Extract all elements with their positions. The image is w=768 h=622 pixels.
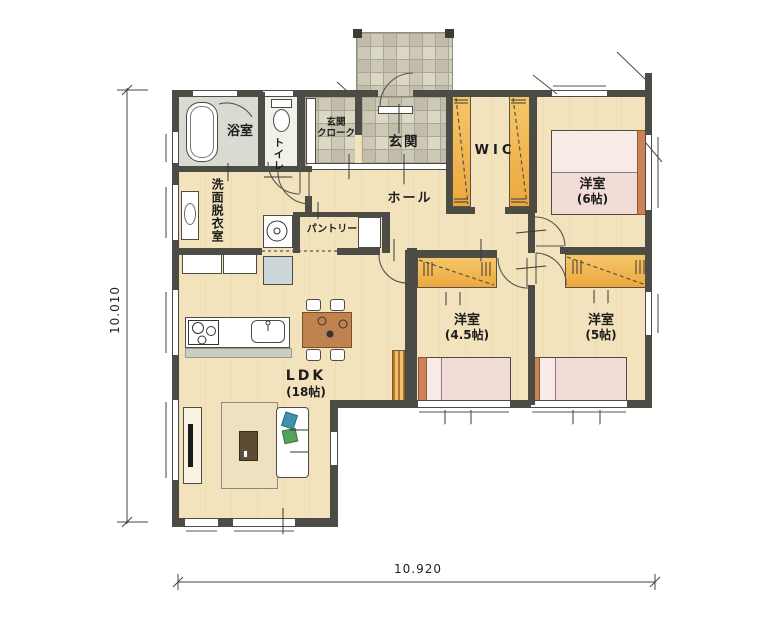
dimension-left: 10.010 bbox=[108, 275, 122, 345]
dining-table bbox=[302, 312, 352, 348]
window bbox=[172, 132, 179, 163]
wall bbox=[505, 207, 535, 214]
window bbox=[233, 518, 295, 527]
wall bbox=[297, 92, 305, 166]
wall bbox=[530, 92, 537, 213]
label-entrance-cloak: 玄関 クローク bbox=[312, 117, 360, 139]
window bbox=[645, 292, 652, 335]
wall bbox=[528, 285, 535, 405]
porch-post bbox=[353, 29, 362, 38]
tv bbox=[188, 424, 193, 467]
wall bbox=[293, 212, 390, 217]
toilet-bowl bbox=[273, 109, 290, 132]
wic-closet-strip bbox=[452, 95, 471, 207]
refrigerator bbox=[263, 256, 293, 285]
label-bath: 浴室 bbox=[218, 124, 262, 139]
stove bbox=[188, 320, 219, 345]
kitchen-back-cabinet bbox=[223, 253, 257, 274]
wall bbox=[330, 465, 338, 527]
window bbox=[418, 400, 510, 408]
label-wic: WIC bbox=[470, 143, 520, 158]
washing-machine bbox=[263, 215, 293, 248]
wall bbox=[172, 166, 312, 172]
label-pantry: パントリー bbox=[304, 224, 360, 236]
wall bbox=[627, 400, 652, 408]
window bbox=[172, 185, 179, 240]
wall bbox=[382, 212, 390, 253]
wall bbox=[446, 92, 452, 213]
window bbox=[552, 90, 607, 97]
wall bbox=[417, 250, 497, 257]
wall bbox=[645, 335, 652, 408]
window bbox=[193, 90, 237, 97]
wall bbox=[560, 247, 652, 254]
dimension-bottom: 10.920 bbox=[383, 562, 453, 576]
kitchen-counter-front bbox=[185, 348, 292, 358]
label-bedroom5: 洋室 (5帖) bbox=[570, 313, 632, 342]
entrance-step bbox=[308, 163, 452, 170]
window bbox=[330, 432, 338, 465]
bed-bedroom45-blanket bbox=[441, 358, 510, 401]
porch-tiles bbox=[356, 32, 453, 97]
dining-chair bbox=[306, 349, 321, 361]
pantry-shelf bbox=[358, 217, 381, 248]
kitchen-back-cabinet bbox=[182, 253, 222, 274]
wall bbox=[218, 518, 233, 527]
wall bbox=[172, 518, 185, 527]
sofa-cushion-green bbox=[282, 428, 299, 445]
label-toilet: トイレ bbox=[272, 134, 284, 174]
label-bedroom45: 洋室 (4.5帖) bbox=[435, 313, 499, 342]
wall bbox=[172, 355, 179, 400]
wall bbox=[528, 213, 535, 253]
dining-chair bbox=[306, 299, 321, 311]
dining-chair bbox=[330, 349, 345, 361]
wall bbox=[293, 212, 300, 253]
bed-bedroom45-headboard bbox=[418, 357, 427, 402]
label-hall: ホール bbox=[384, 191, 436, 206]
slat-screen bbox=[392, 350, 405, 402]
wall bbox=[645, 73, 652, 135]
window bbox=[172, 400, 179, 480]
closet-bedroom5 bbox=[565, 254, 648, 288]
closet-bedroom45 bbox=[417, 257, 497, 288]
bed-bedroom5-blanket bbox=[555, 358, 626, 401]
floor-plan: 浴室 トイレ 玄関 クローク 玄関 ホール WIC 洗面脱衣室 パントリー 洋室… bbox=[0, 0, 768, 622]
entrance-door-leaf bbox=[378, 106, 413, 114]
label-entrance: 玄関 bbox=[380, 135, 428, 151]
window bbox=[185, 518, 218, 527]
window bbox=[645, 135, 652, 210]
center-table bbox=[239, 431, 258, 461]
remote bbox=[243, 450, 248, 458]
wall bbox=[172, 90, 179, 132]
wall bbox=[405, 250, 417, 405]
bathtub-inner bbox=[190, 106, 214, 158]
porch-post bbox=[445, 29, 454, 38]
window bbox=[172, 290, 179, 355]
dining-chair bbox=[330, 299, 345, 311]
label-washroom: 洗面脱衣室 bbox=[210, 170, 224, 250]
wash-basin bbox=[184, 203, 196, 225]
wall bbox=[330, 405, 338, 432]
window bbox=[531, 400, 627, 408]
window bbox=[263, 90, 293, 97]
toilet-tank bbox=[271, 99, 292, 108]
wall bbox=[337, 248, 380, 255]
wall bbox=[446, 207, 475, 214]
kitchen-sink bbox=[251, 320, 285, 343]
label-ldk: LDK (18帖) bbox=[272, 368, 340, 399]
label-bedroom6: 洋室 (6帖) bbox=[565, 177, 620, 206]
